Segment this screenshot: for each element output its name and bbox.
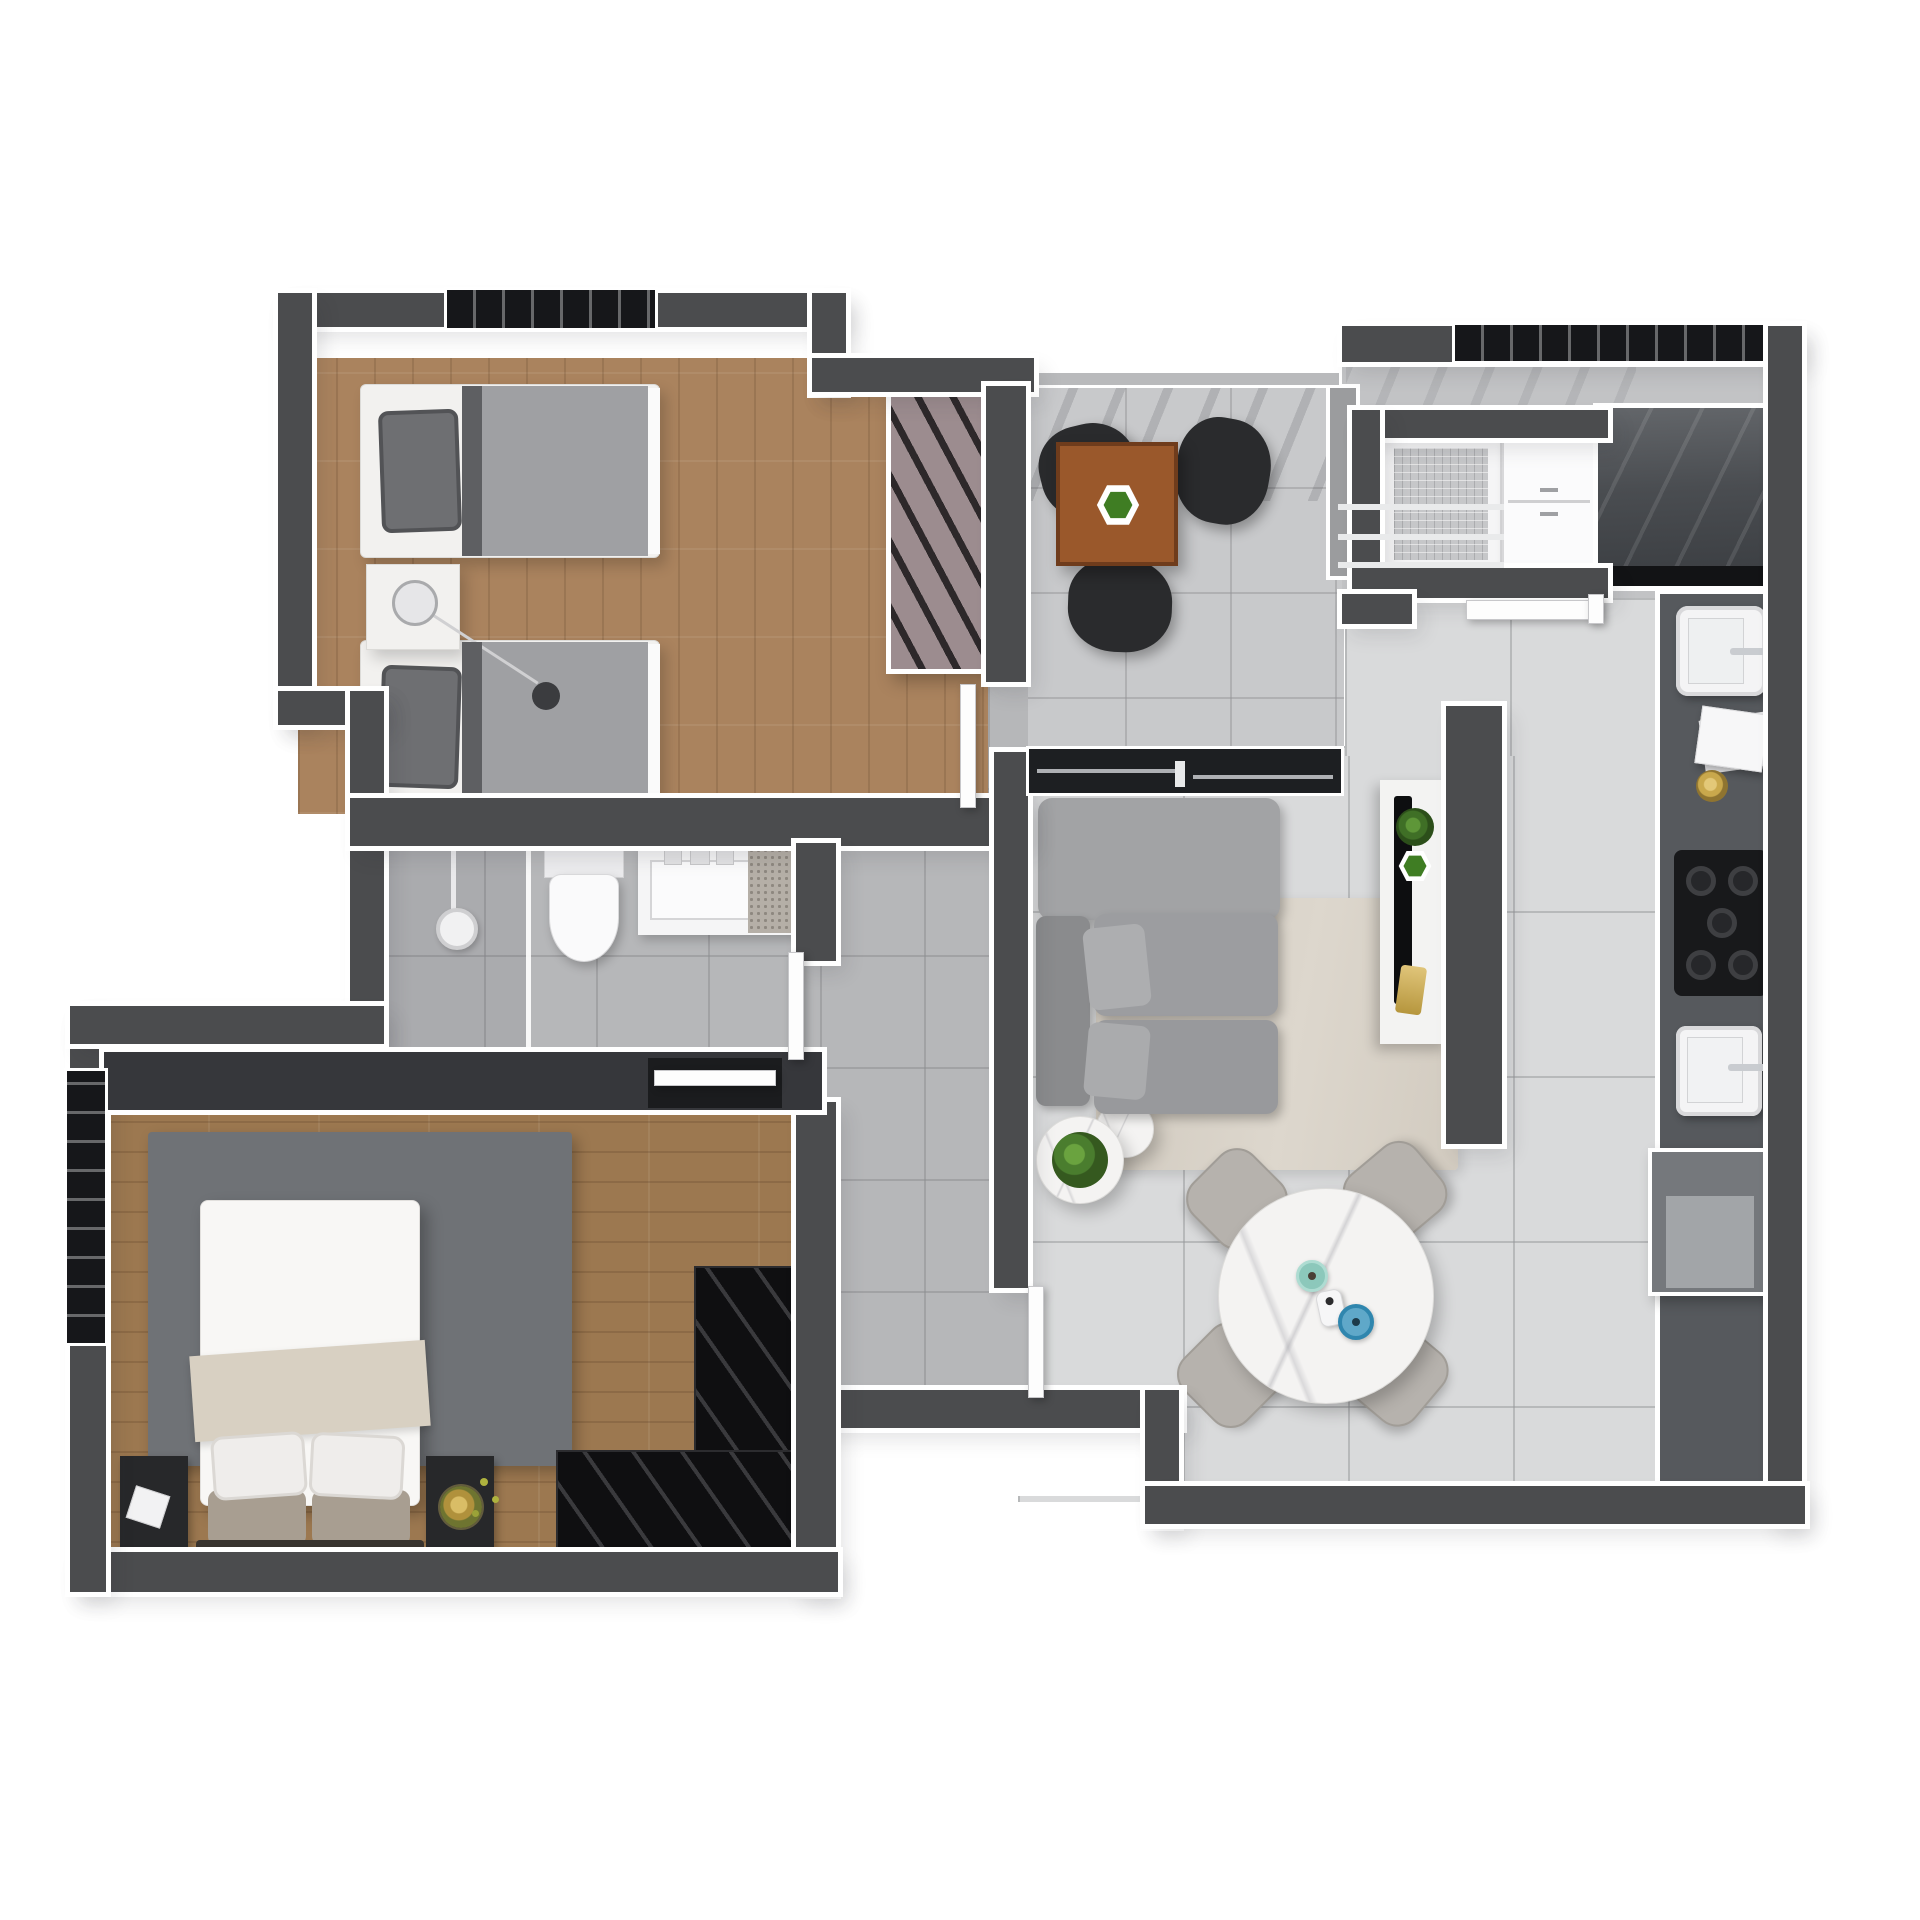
door-laundry-hinge — [1588, 594, 1604, 624]
wall-master-right — [796, 1102, 836, 1594]
scattered-petals — [492, 1496, 499, 1503]
scattered-petals — [480, 1478, 488, 1486]
wall-washer-niche-top — [1352, 410, 1608, 438]
cabinet-door-split — [1508, 500, 1590, 503]
towels-stack — [1694, 706, 1769, 773]
twin-bed-2-footboard — [648, 644, 660, 810]
vanity-faucet — [690, 847, 710, 865]
twin-ball-lamp — [392, 580, 438, 626]
door-bathroom — [788, 952, 804, 1060]
wall-laundry-door-stub — [1342, 594, 1412, 624]
bowl-center — [1352, 1318, 1360, 1326]
twin-bed-1-fold — [462, 386, 482, 556]
shower-pole — [451, 848, 456, 912]
twin-bed-1-footboard — [648, 388, 660, 554]
wall-twin-right — [986, 386, 1026, 682]
pitcher-dot — [1325, 1296, 1334, 1305]
burner — [1707, 908, 1737, 938]
laundry-cabinet — [1502, 434, 1596, 572]
exterior-notch-mask — [1010, 1424, 1152, 1496]
master-wardrobe-vertical — [694, 1266, 808, 1460]
door-master-slider — [654, 1070, 776, 1086]
fridge-inner-panel — [1666, 1196, 1754, 1288]
twin-bed-2-fold — [462, 642, 482, 812]
master-pillow-white-2 — [308, 1432, 405, 1501]
window-laundry — [1452, 322, 1766, 364]
burner — [1686, 950, 1716, 980]
master-bed-throw — [189, 1340, 430, 1442]
slider-handle — [1175, 761, 1185, 787]
wall-tv-partition — [1446, 706, 1502, 1144]
wall-twin-left — [278, 293, 312, 725]
wall-living-left — [994, 752, 1028, 1288]
wall-bathroom-right — [796, 843, 836, 961]
sofa-chaise — [1038, 798, 1280, 920]
gold-dish — [1696, 770, 1728, 802]
burner — [1728, 866, 1758, 896]
twin-bed-1-duvet — [462, 386, 648, 556]
cabinet-handle — [1540, 488, 1558, 492]
sofa — [1030, 792, 1288, 1112]
wall-twin-bottom — [350, 798, 1028, 846]
nightstand-gold-tray-plant — [440, 1486, 482, 1528]
master-pillow-white-1 — [210, 1431, 308, 1501]
master-wardrobe-horizontal — [556, 1450, 808, 1552]
burner — [1686, 866, 1716, 896]
cabinet-handle — [1540, 512, 1558, 516]
toilet-bowl — [549, 874, 619, 962]
floor-plan — [0, 0, 1920, 1920]
wall-bottom-exterior — [1145, 1486, 1805, 1524]
kitchen-faucet — [1728, 1064, 1772, 1071]
console-plant — [1396, 808, 1434, 846]
wall-master-topleft — [70, 1006, 384, 1044]
twin-bed-2-pillow — [378, 665, 462, 790]
laundry-glossy-counter — [1598, 408, 1772, 586]
window-master-bedroom — [64, 1068, 108, 1346]
kitchen-sink — [1676, 1026, 1762, 1116]
slider-pane-line — [1193, 775, 1333, 779]
balcony-sliding-glass-door — [1026, 746, 1344, 796]
twin-wardrobe — [886, 388, 990, 674]
twin-bed-2-duvet — [462, 642, 648, 812]
door-twin-bedroom — [960, 684, 976, 808]
counter-front-edge — [1598, 566, 1772, 586]
coffee-table-plant — [1052, 1132, 1108, 1188]
vanity-accessory — [716, 849, 734, 865]
sofa-backrest — [1036, 916, 1090, 1106]
drying-rack-bar — [1338, 562, 1504, 568]
drying-rack-bar — [1338, 504, 1504, 510]
wall-master-bottom — [70, 1552, 838, 1592]
slider-pane-line — [1037, 769, 1177, 773]
door-laundry — [1466, 600, 1600, 620]
door-living-entry — [1028, 1286, 1044, 1398]
vanity-sink — [650, 860, 750, 920]
burner — [1728, 950, 1758, 980]
twin-lamp-shade — [532, 682, 560, 710]
cup-center — [1308, 1272, 1316, 1280]
shower-head — [436, 908, 478, 950]
cooktop — [1674, 850, 1768, 996]
drying-rack-bar — [1338, 534, 1504, 540]
twin-bed-1-pillow — [378, 409, 462, 534]
sofa-pillow-2 — [1083, 1021, 1151, 1100]
sofa-pillow-1 — [1082, 923, 1152, 1011]
teal-cup — [1296, 1260, 1328, 1292]
balcony-chair-3 — [1066, 556, 1173, 654]
fridge-cabinet — [1648, 1148, 1772, 1296]
scattered-petals — [472, 1510, 479, 1517]
window-twin-bedroom — [444, 287, 658, 331]
balcony-railing — [1024, 370, 1342, 388]
wall-right-exterior — [1768, 326, 1802, 1524]
shower-glass-partition — [526, 846, 531, 1062]
blue-bowl — [1338, 1304, 1374, 1340]
vanity-accessory — [664, 849, 682, 865]
wall-hall-bottom — [798, 1390, 1182, 1428]
